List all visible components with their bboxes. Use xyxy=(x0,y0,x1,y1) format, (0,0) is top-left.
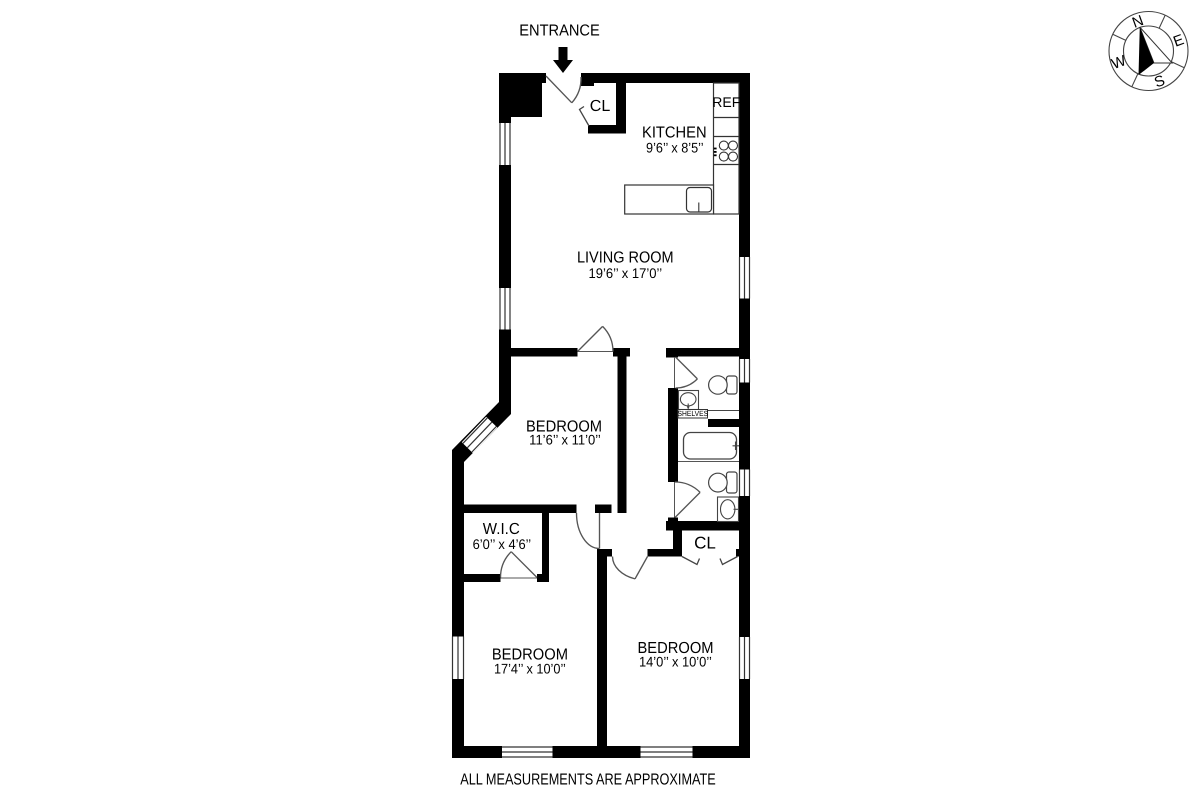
svg-text:17’4’’ x 10’0’’: 17’4’’ x 10’0’’ xyxy=(494,661,566,677)
svg-text:LIVING ROOM: LIVING ROOM xyxy=(577,250,674,267)
svg-text:REF: REF xyxy=(712,94,740,110)
svg-text:ENTRANCE: ENTRANCE xyxy=(519,23,600,40)
svg-text:14’0’’ x 10’0’’: 14’0’’ x 10’0’’ xyxy=(639,654,712,670)
svg-text:CL: CL xyxy=(590,98,611,115)
svg-text:11’6’’ x 11’0’’: 11’6’’ x 11’0’’ xyxy=(529,432,601,448)
svg-text:6’0’’ x 4’6’’: 6’0’’ x 4’6’’ xyxy=(473,536,532,552)
svg-text:9’6’’ x 8’5’’: 9’6’’ x 8’5’’ xyxy=(646,139,704,155)
svg-text:SHELVES: SHELVES xyxy=(677,409,708,418)
svg-text:CL: CL xyxy=(694,534,716,553)
svg-text:19’6’’ x 17’0’’: 19’6’’ x 17’0’’ xyxy=(588,265,662,281)
svg-text:ALL MEASUREMENTS ARE APPROXIMA: ALL MEASUREMENTS ARE APPROXIMATE xyxy=(460,772,716,789)
